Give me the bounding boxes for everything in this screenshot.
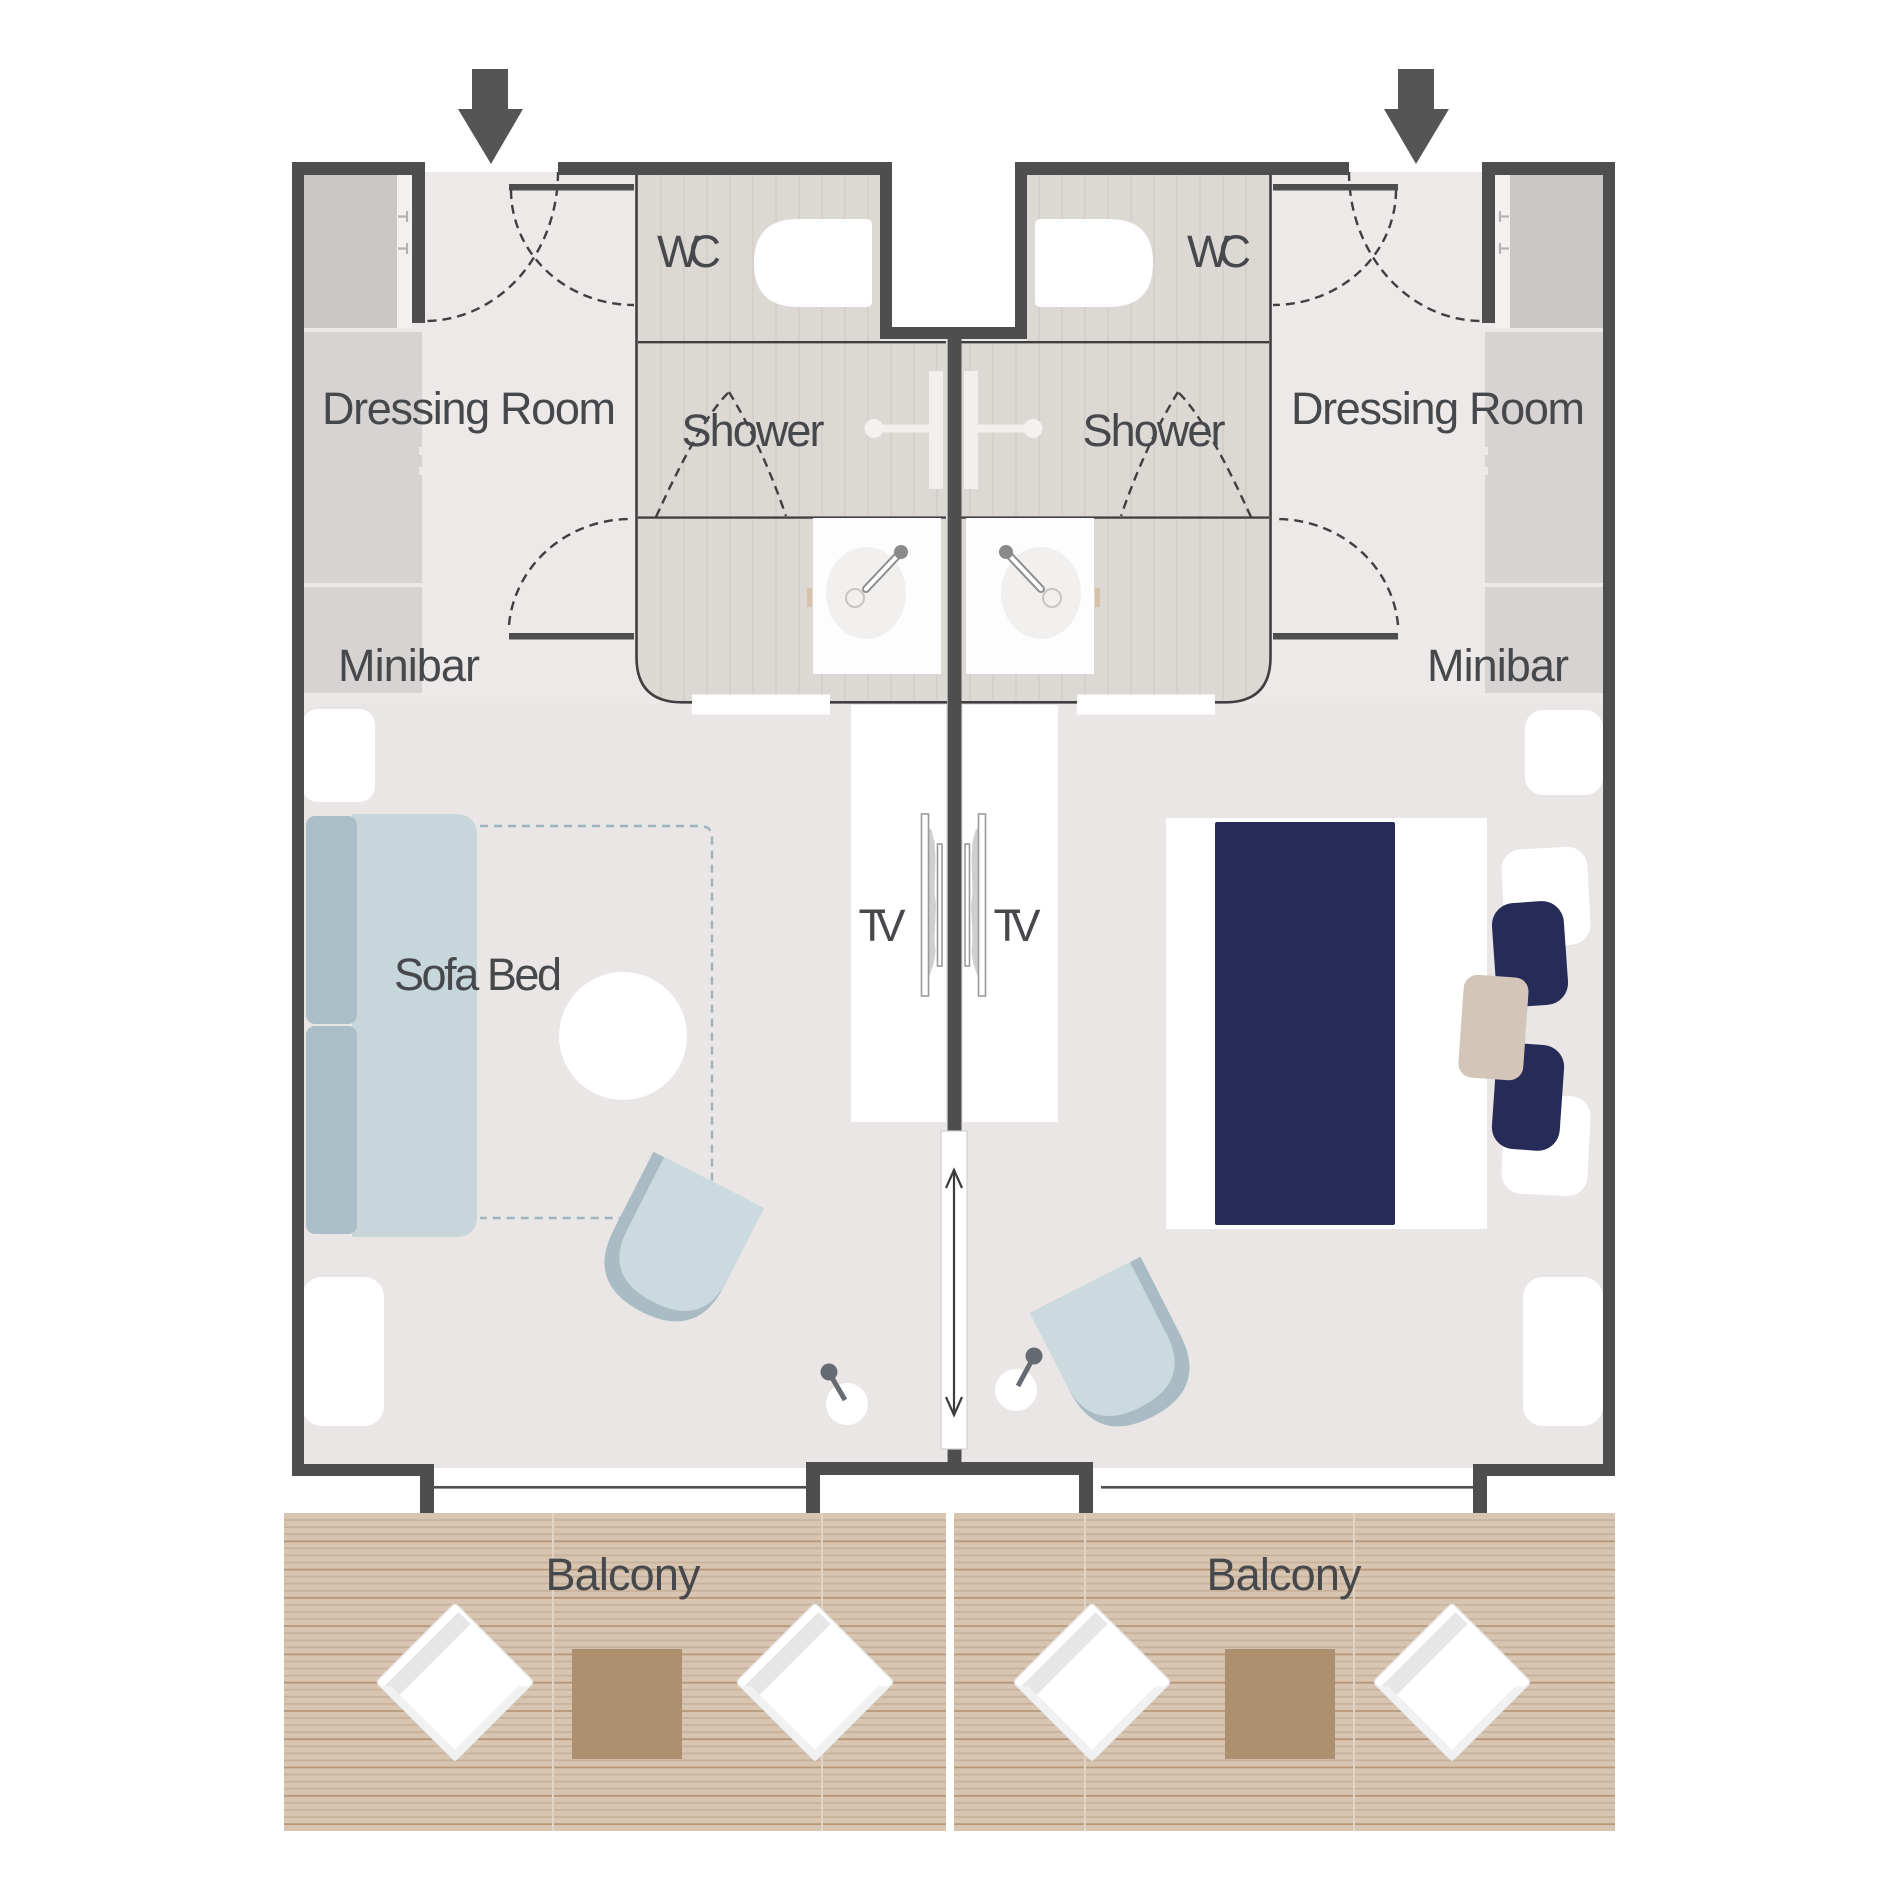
svg-text:Shower: Shower — [682, 405, 825, 456]
svg-text:WC: WC — [657, 226, 721, 277]
svg-text:Sofa Bed: Sofa Bed — [394, 949, 562, 1000]
svg-text:Balcony: Balcony — [1207, 1549, 1363, 1600]
svg-text:Minibar: Minibar — [338, 640, 480, 691]
svg-text:TV: TV — [994, 900, 1041, 951]
svg-text:Dressing Room: Dressing Room — [1291, 383, 1585, 434]
svg-text:Shower: Shower — [1083, 405, 1226, 456]
svg-text:WC: WC — [1187, 226, 1251, 277]
svg-text:Balcony: Balcony — [546, 1549, 702, 1600]
svg-text:TV: TV — [859, 900, 906, 951]
svg-text:Minibar: Minibar — [1427, 640, 1569, 691]
svg-text:Dressing Room: Dressing Room — [322, 383, 616, 434]
